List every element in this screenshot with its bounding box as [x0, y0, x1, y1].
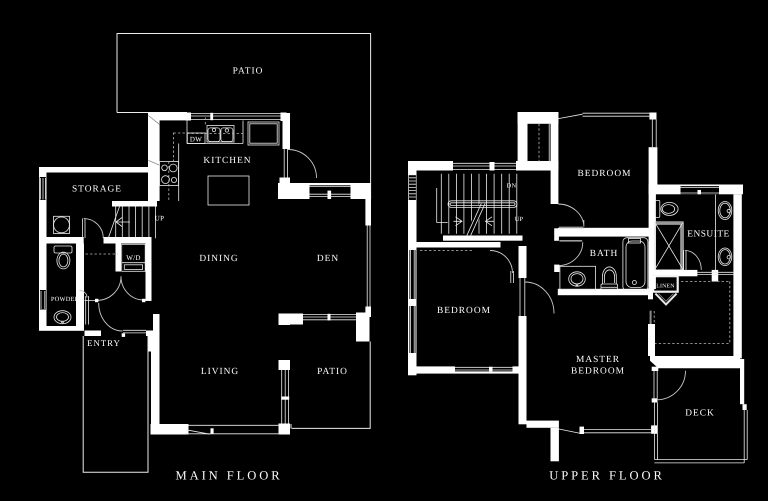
svg-text:LINEN: LINEN [656, 284, 675, 290]
svg-text:LIVING: LIVING [201, 367, 239, 377]
svg-text:W/D: W/D [126, 254, 141, 262]
svg-text:BEDROOM: BEDROOM [571, 367, 625, 377]
svg-text:UP: UP [515, 216, 524, 223]
svg-text:ENSUITE: ENSUITE [687, 230, 730, 240]
svg-text:UPPER FLOOR: UPPER FLOOR [549, 469, 665, 483]
svg-text:STORAGE: STORAGE [72, 185, 122, 195]
svg-text:DW: DW [190, 136, 202, 144]
svg-text:DN: DN [507, 183, 517, 190]
svg-text:KITCHEN: KITCHEN [203, 156, 251, 166]
svg-text:PATIO: PATIO [317, 367, 348, 377]
svg-text:POWDER: POWDER [51, 296, 80, 303]
svg-text:DINING: DINING [199, 254, 238, 264]
svg-text:MASTER: MASTER [576, 355, 620, 365]
svg-text:BEDROOM: BEDROOM [578, 169, 632, 179]
svg-text:UP: UP [155, 215, 165, 223]
svg-text:DECK: DECK [685, 409, 715, 419]
svg-text:ENTRY: ENTRY [87, 338, 121, 348]
svg-text:BATH: BATH [590, 249, 618, 259]
svg-text:PATIO: PATIO [233, 67, 264, 77]
svg-text:DEN: DEN [317, 254, 339, 264]
svg-text:BEDROOM: BEDROOM [437, 306, 491, 316]
svg-text:MAIN FLOOR: MAIN FLOOR [175, 469, 282, 483]
